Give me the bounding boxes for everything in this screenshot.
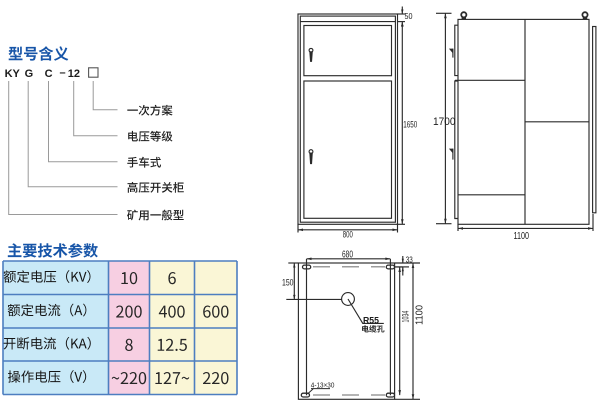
svg-text:4-13×30: 4-13×30 [311,380,335,389]
svg-text:KY: KY [5,68,21,80]
svg-text:1034: 1034 [400,311,410,323]
svg-text:–: – [60,67,66,79]
svg-text:680: 680 [342,250,353,261]
svg-text:R55: R55 [363,316,379,326]
svg-text:1100: 1100 [414,305,425,325]
svg-text:150: 150 [282,278,294,288]
svg-text:12: 12 [68,68,80,80]
svg-text:G: G [25,68,34,80]
svg-text:1100: 1100 [514,231,530,242]
svg-text:C: C [45,68,53,80]
svg-text:50: 50 [405,11,413,21]
svg-text:1650: 1650 [403,119,417,129]
svg-text:1700: 1700 [433,116,456,128]
svg-text:800: 800 [343,230,353,240]
